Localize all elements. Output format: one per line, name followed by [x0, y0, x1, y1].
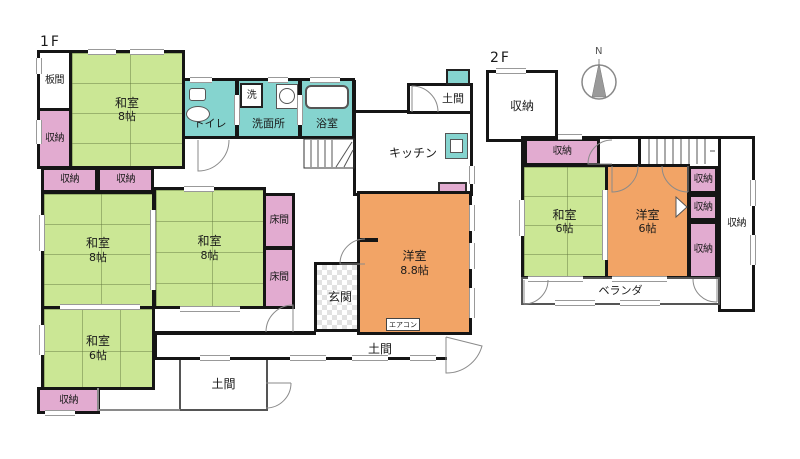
porch-edge-line — [98, 409, 180, 411]
window-marker — [36, 58, 42, 74]
room-label: 収納 — [59, 395, 78, 407]
sliding-door-marker — [297, 95, 303, 125]
doma-strip-label: 土間 — [368, 340, 392, 357]
staircase-1f — [304, 139, 354, 168]
room-label: 和室 — [552, 208, 576, 222]
toilet-tank-icon — [189, 88, 206, 101]
sliding-door-marker — [528, 276, 583, 282]
compass-icon — [582, 59, 616, 99]
entry-sink-icon — [446, 69, 470, 85]
window-marker — [469, 205, 475, 231]
floor-plan: 1F 2F 板間 和室 8帖 収納 トイレ 洗面所 洗 浴室 キッチン 土間 収… — [0, 0, 800, 459]
room-2f-western-6: 洋室 6帖 — [605, 164, 690, 279]
window-marker — [200, 355, 230, 361]
room-label: 洋室 — [635, 208, 659, 222]
toilet-bowl-icon — [186, 106, 210, 122]
room-label: 浴室 — [316, 117, 338, 130]
window-marker — [268, 77, 288, 83]
sliding-door-marker — [60, 304, 140, 310]
window-marker — [310, 77, 340, 83]
aircon-label: エアコン — [386, 318, 420, 331]
room-label: 和室 — [197, 234, 221, 248]
window-marker — [290, 355, 326, 361]
room-tokonoma-b: 床間 — [263, 247, 295, 309]
room-size: 6帖 — [639, 222, 657, 235]
room-size: 6帖 — [556, 222, 574, 235]
window-marker — [410, 355, 436, 361]
sliding-door-marker — [150, 210, 156, 290]
room-label: 洗面所 — [252, 117, 285, 130]
room-size: 8帖 — [89, 251, 107, 264]
room-label: 玄関 — [328, 290, 352, 304]
room-label: 収納 — [45, 133, 64, 145]
window-marker — [184, 186, 214, 192]
room-label: 収納 — [60, 174, 79, 186]
window-marker — [88, 49, 116, 55]
room-2f-storage-top: 収納 — [524, 138, 600, 166]
window-marker — [469, 288, 475, 318]
compass-north-label: N — [595, 46, 602, 57]
room-washitsu6: 和室 6帖 — [41, 306, 155, 390]
room-label: 収納 — [694, 244, 713, 256]
room-label: 床間 — [270, 215, 289, 227]
room-2f-storage-r3: 収納 — [688, 221, 718, 279]
room-label: 収納 — [510, 99, 534, 113]
room-washitsu8-right: 和室 8帖 — [153, 187, 266, 309]
room-label: 板間 — [45, 75, 64, 87]
window-marker — [45, 410, 75, 416]
sliding-door-marker — [180, 306, 240, 312]
room-label: 収納 — [694, 202, 713, 214]
bathtub-icon — [305, 85, 349, 109]
sliding-door-marker — [612, 276, 667, 282]
window-marker — [36, 120, 42, 144]
room-washitsu8-top: 和室 8帖 — [69, 50, 185, 169]
wall-segment — [360, 238, 378, 242]
room-label: 土間 — [442, 92, 464, 105]
window-marker — [750, 180, 756, 206]
window-marker — [558, 134, 582, 140]
room-size: 8帖 — [118, 110, 136, 123]
room-western-8-8: 洋室 8.8帖 — [357, 191, 472, 335]
window-marker — [750, 235, 756, 265]
window-marker — [519, 200, 525, 236]
room-label: 洋室 — [402, 249, 426, 263]
floor1-label: 1F — [40, 34, 61, 50]
room-size: 6帖 — [89, 349, 107, 362]
window-marker — [469, 166, 475, 184]
room-label: 土間 — [211, 377, 235, 391]
wall-segment — [638, 138, 641, 165]
room-storage-a: 収納 — [41, 167, 98, 193]
door-arc — [266, 305, 293, 332]
window-marker — [555, 300, 595, 306]
window-marker — [496, 68, 526, 74]
room-2f-storage-r2: 収納 — [688, 194, 718, 221]
door-arc — [266, 383, 291, 408]
room-2f-storage-annex: 収納 — [486, 70, 558, 142]
room-label: 収納 — [553, 146, 572, 158]
room-size: 8.8帖 — [400, 264, 429, 277]
room-doma-entry: 土間 — [407, 83, 473, 114]
room-label: 収納 — [116, 174, 135, 186]
window-marker — [130, 49, 164, 55]
room-2f-storage-tall: 収納 — [718, 136, 755, 312]
window-marker — [469, 243, 475, 269]
room-label: キッチン — [389, 146, 437, 160]
porch-edge-line — [97, 388, 99, 411]
room-size: 8帖 — [201, 249, 219, 262]
window-marker — [39, 325, 45, 355]
room-label: 洗 — [247, 90, 257, 102]
sliding-door-marker — [234, 95, 240, 125]
room-label: 和室 — [86, 334, 110, 348]
room-washitsu8-left: 和室 8帖 — [41, 191, 155, 309]
room-2f-washitsu6: 和室 6帖 — [521, 164, 608, 279]
wall-segment — [353, 80, 356, 113]
wall-segment — [153, 331, 316, 335]
room-label: 床間 — [270, 272, 289, 284]
kitchen-sink-bowl-icon — [450, 139, 463, 153]
room-storage-b: 収納 — [97, 167, 154, 193]
room-storage-left: 収納 — [37, 108, 72, 169]
sink-bowl-icon — [279, 88, 295, 104]
window-marker — [620, 300, 660, 306]
room-doma-box: 土間 — [179, 358, 268, 411]
window-marker — [39, 215, 45, 251]
laundry-box: 洗 — [240, 83, 263, 108]
room-label: ベランダ — [599, 284, 643, 297]
sliding-door-marker — [602, 190, 608, 260]
wall-segment — [153, 331, 157, 360]
door-arc — [198, 140, 229, 171]
room-2f-storage-r1: 収納 — [688, 166, 718, 194]
entrance-fan-door — [446, 337, 482, 373]
window-marker — [190, 77, 212, 83]
room-tokonoma-a: 床間 — [263, 193, 295, 249]
room-label: 収納 — [694, 174, 713, 186]
room-label: 収納 — [727, 218, 746, 230]
floor2-label: 2F — [490, 50, 511, 66]
room-itanoma: 板間 — [37, 50, 72, 111]
room-label: 和室 — [115, 96, 139, 110]
room-label: 和室 — [86, 236, 110, 250]
